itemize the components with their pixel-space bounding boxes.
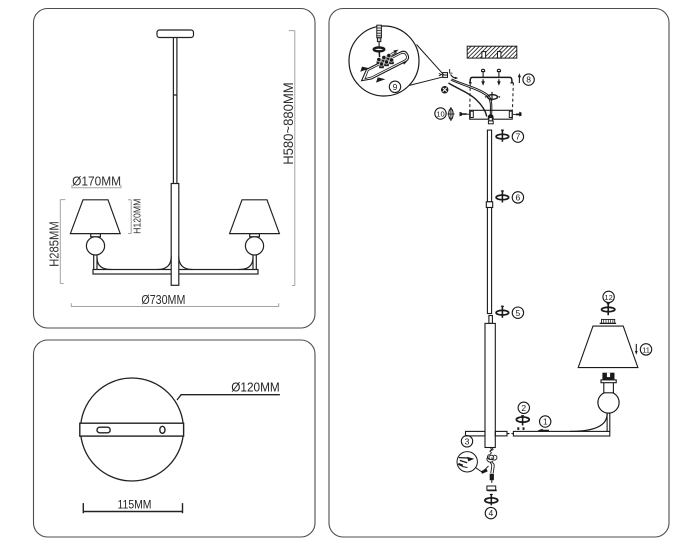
svg-text:H120MM: H120MM — [133, 199, 144, 234]
svg-text:6: 6 — [516, 193, 521, 203]
svg-text:12: 12 — [604, 293, 612, 302]
svg-text:8: 8 — [526, 75, 531, 85]
svg-text:9: 9 — [393, 82, 398, 92]
svg-text:10: 10 — [436, 110, 444, 119]
svg-text:3: 3 — [465, 436, 470, 446]
svg-text:2: 2 — [521, 403, 526, 413]
svg-text:11: 11 — [642, 346, 650, 355]
svg-text:H285MM: H285MM — [47, 221, 62, 267]
svg-text:1: 1 — [543, 417, 548, 427]
svg-text:Ø730MM: Ø730MM — [141, 292, 185, 307]
svg-text:4: 4 — [489, 508, 494, 518]
svg-text:H580~880MM: H580~880MM — [281, 82, 296, 165]
svg-text:115MM: 115MM — [118, 500, 152, 512]
svg-text:7: 7 — [516, 132, 521, 142]
svg-text:Ø170MM: Ø170MM — [72, 174, 121, 189]
svg-text:Ø120MM: Ø120MM — [231, 380, 280, 395]
svg-text:5: 5 — [516, 308, 521, 318]
